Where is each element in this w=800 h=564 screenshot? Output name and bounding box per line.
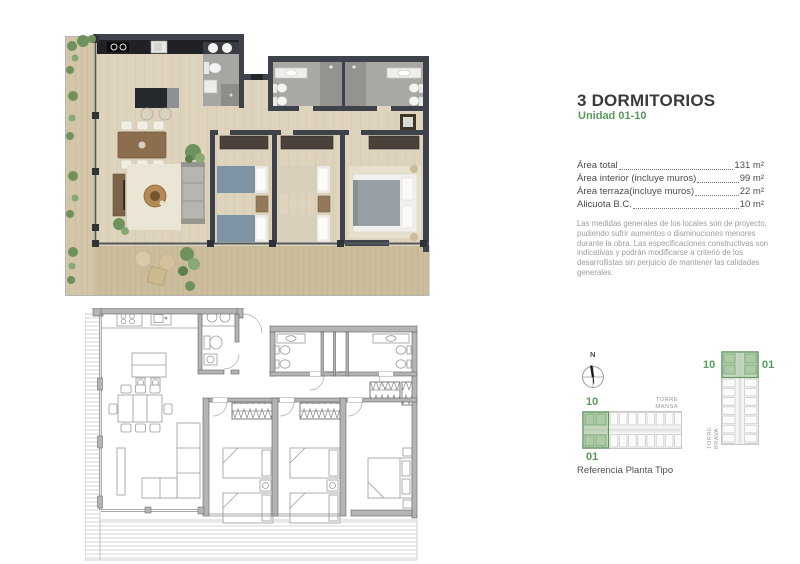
area-row: Área terraza(incluye muros)22 m² — [577, 185, 764, 198]
unit-subtitle: Unidad 01-10 — [578, 110, 646, 122]
page: { "header": { "title": "3 DORMITORIOS", … — [0, 0, 800, 564]
torre-mansa-name: TORRE MANSA — [636, 397, 678, 410]
reference-caption: Referencia Planta Tipo — [577, 465, 673, 476]
brava-unit-right-label: 01 — [762, 359, 774, 371]
torre-mansa-diagram — [582, 411, 682, 449]
rendered-floor-plan — [63, 28, 433, 300]
dining-set — [118, 121, 166, 169]
torre-brava-diagram — [721, 351, 759, 445]
kitchen-tech — [101, 311, 198, 387]
area-row: Alicuota B.C.10 m² — [577, 198, 764, 211]
area-table: Área total131 m² Área interior (incluye … — [577, 159, 764, 211]
master-bedroom — [349, 165, 421, 241]
brava-unit-left-label: 10 — [703, 359, 715, 371]
area-row: Área interior (incluye muros)99 m² — [577, 172, 764, 185]
bath1-tech — [202, 310, 235, 365]
technical-floor-plan — [85, 308, 432, 562]
page-title: 3 DORMITORIOS — [577, 91, 715, 111]
mansa-highlighted-unit — [583, 412, 609, 448]
baths-right-tech — [275, 334, 411, 372]
compass-north-label: N — [590, 350, 595, 359]
area-row: Área total131 m² — [577, 159, 764, 172]
dining-tech — [109, 385, 172, 432]
brava-highlighted-unit — [722, 352, 758, 378]
disclaimer-text: Las medidas generales de los locales son… — [577, 219, 775, 278]
living-tech — [117, 423, 200, 498]
torre-brava-name: TORRE BRAVA — [707, 409, 720, 449]
compass-icon: N — [576, 348, 610, 394]
mansa-unit-top-label: 10 — [586, 396, 598, 408]
mansa-unit-bottom-label: 01 — [586, 451, 598, 463]
